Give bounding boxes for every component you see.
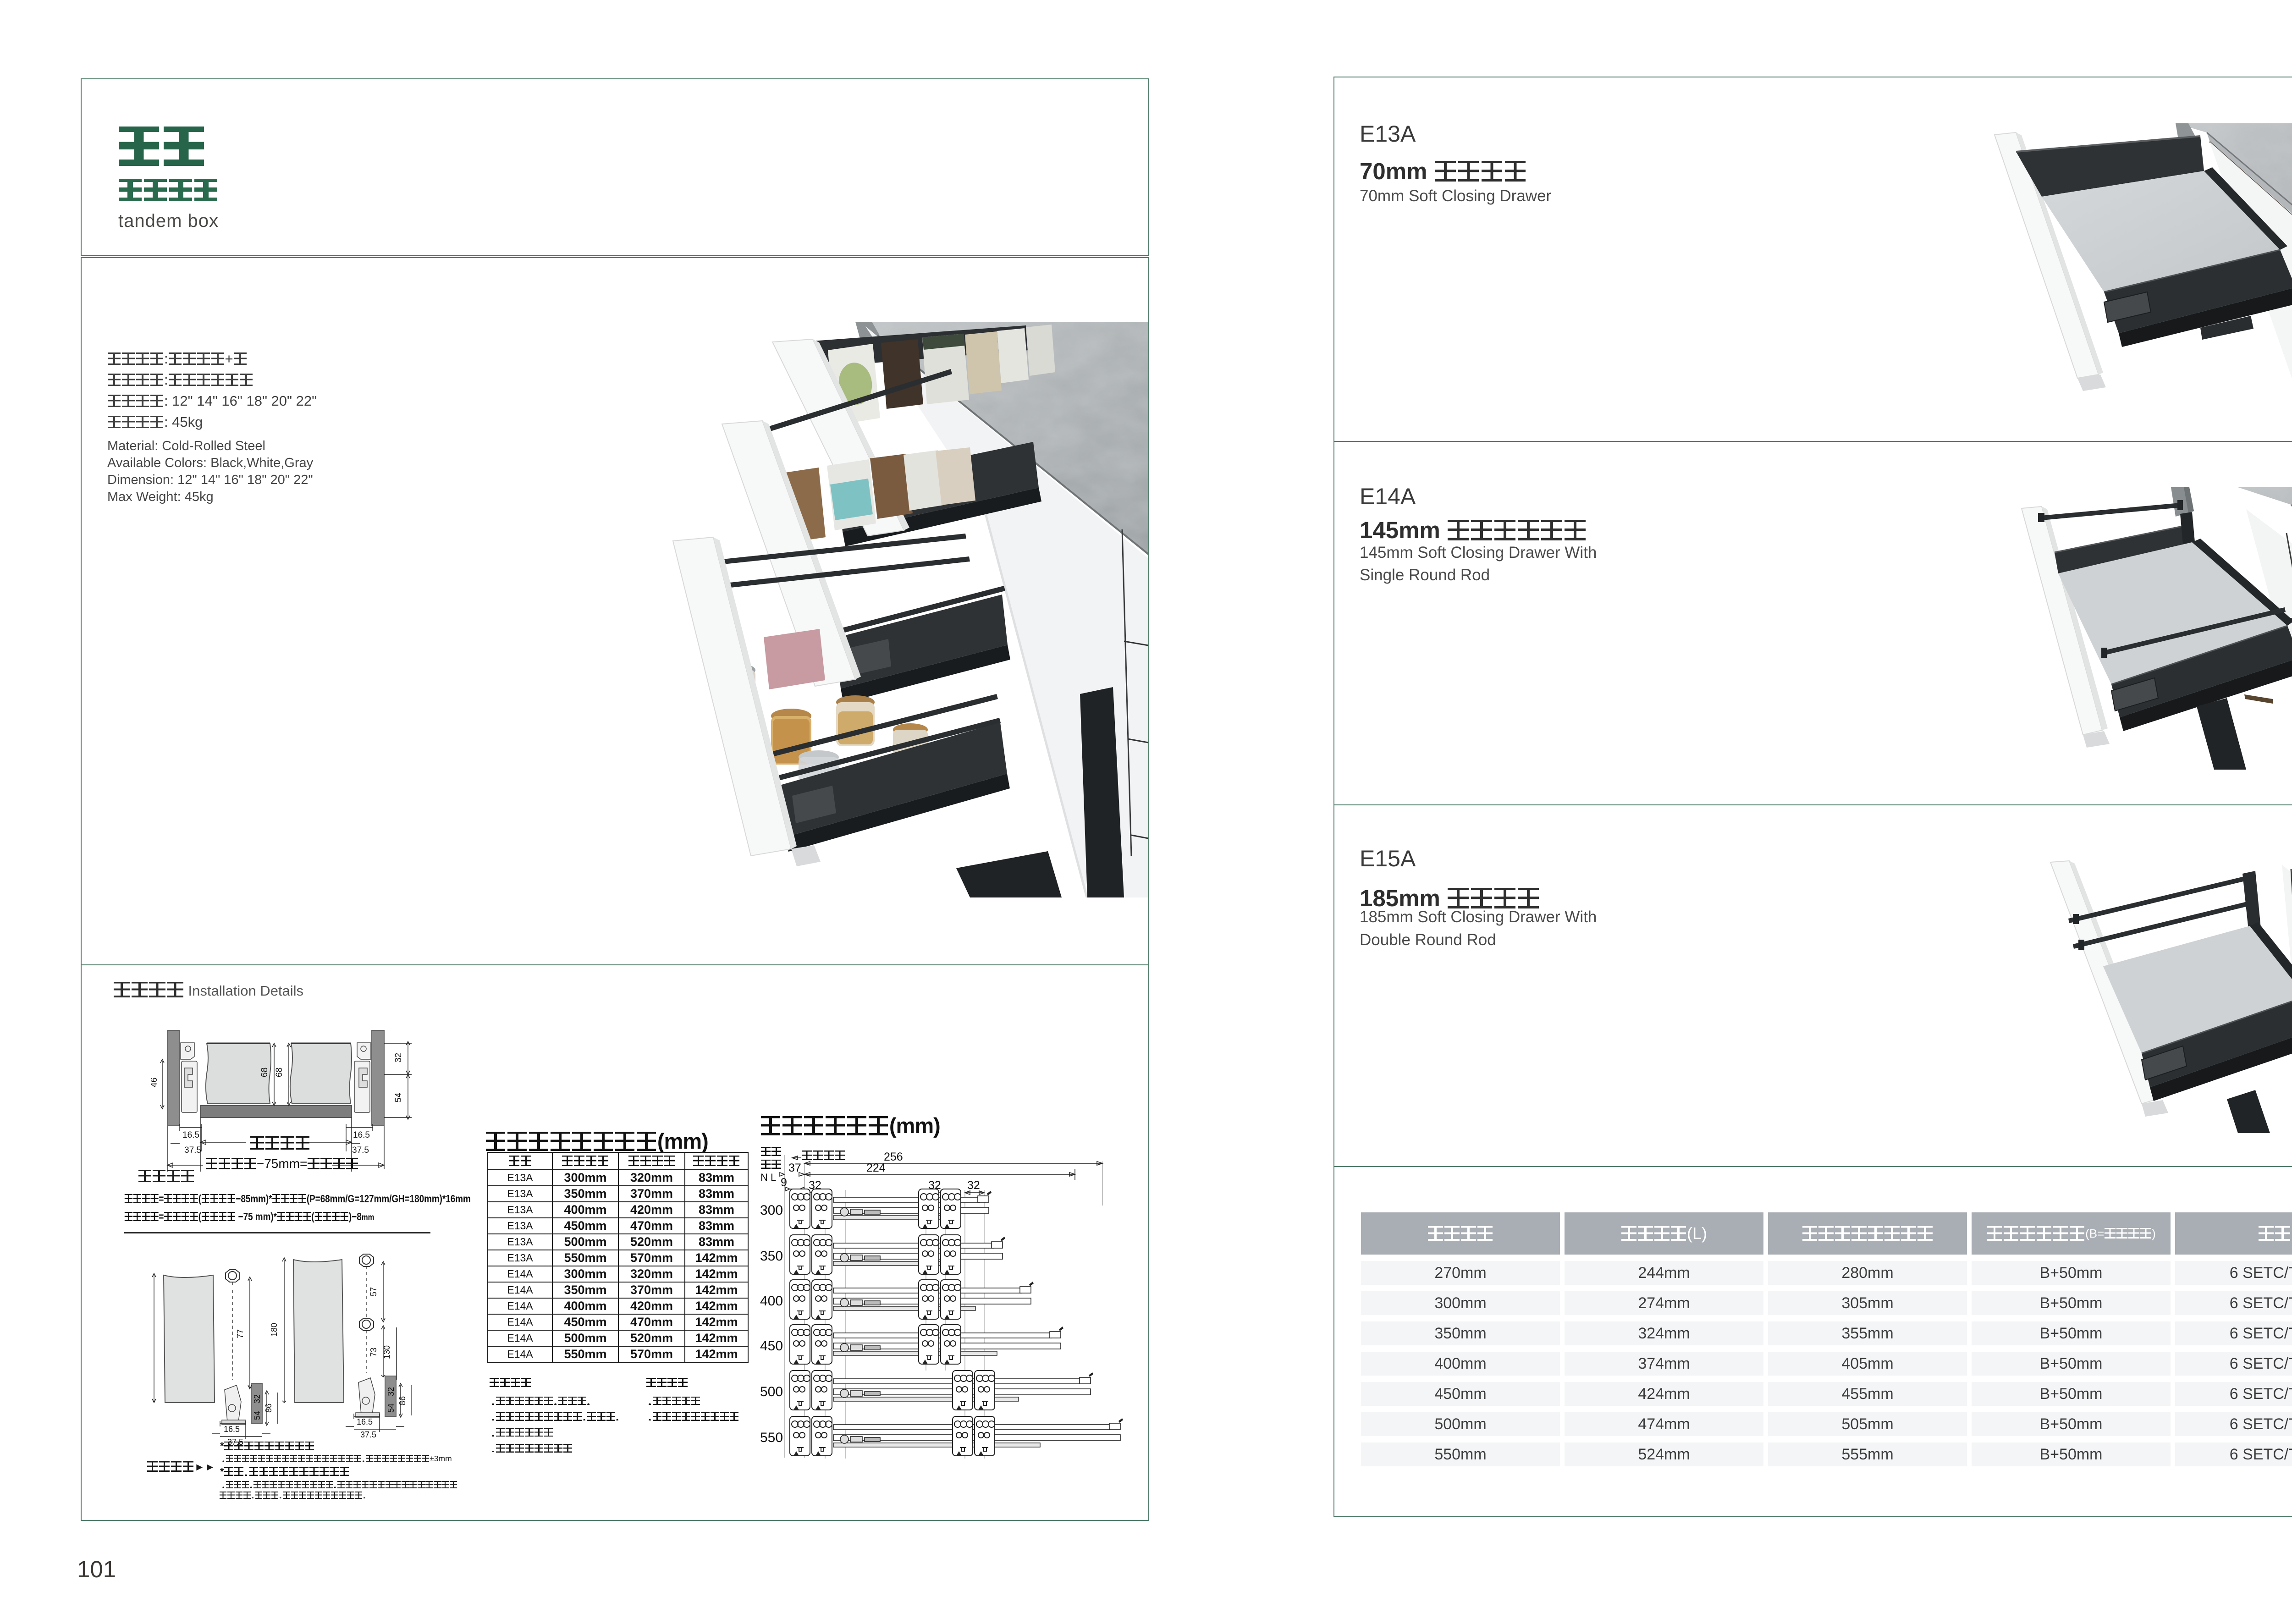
svg-text:32: 32 bbox=[386, 1387, 396, 1396]
svg-text:550: 550 bbox=[760, 1430, 783, 1445]
svg-text:130: 130 bbox=[382, 1345, 391, 1359]
svg-text:54: 54 bbox=[253, 1411, 262, 1420]
svg-text:37.5: 37.5 bbox=[184, 1145, 201, 1155]
svg-text:180: 180 bbox=[270, 1323, 279, 1337]
svg-text:16.5: 16.5 bbox=[224, 1425, 240, 1434]
svg-text:46: 46 bbox=[151, 1078, 159, 1087]
svg-text:37.5: 37.5 bbox=[360, 1430, 376, 1439]
svg-text:54: 54 bbox=[394, 1092, 403, 1102]
svg-text:37: 37 bbox=[788, 1162, 801, 1174]
svg-text:400: 400 bbox=[760, 1294, 783, 1309]
svg-text:68: 68 bbox=[275, 1068, 284, 1077]
svg-text:68: 68 bbox=[260, 1068, 270, 1077]
svg-text:32: 32 bbox=[967, 1179, 980, 1192]
svg-text:77: 77 bbox=[236, 1329, 245, 1338]
svg-text:256: 256 bbox=[884, 1151, 903, 1163]
svg-text:37.5: 37.5 bbox=[227, 1437, 243, 1447]
svg-text:9: 9 bbox=[781, 1176, 787, 1189]
svg-text:86: 86 bbox=[264, 1404, 273, 1413]
svg-text:450: 450 bbox=[760, 1338, 783, 1354]
svg-text:16.5: 16.5 bbox=[357, 1417, 373, 1426]
svg-text:500: 500 bbox=[760, 1384, 783, 1399]
svg-text:54: 54 bbox=[386, 1404, 396, 1413]
svg-text:350: 350 bbox=[760, 1249, 783, 1264]
svg-text:37.5: 37.5 bbox=[352, 1145, 369, 1155]
svg-text:127: 127 bbox=[147, 1330, 149, 1344]
svg-text:73: 73 bbox=[369, 1348, 378, 1357]
svg-text:16.5: 16.5 bbox=[353, 1130, 370, 1140]
svg-text:32: 32 bbox=[253, 1394, 262, 1404]
svg-text:32: 32 bbox=[394, 1053, 403, 1062]
svg-text:86: 86 bbox=[398, 1396, 407, 1405]
svg-text:57: 57 bbox=[369, 1287, 378, 1296]
svg-text:224: 224 bbox=[866, 1162, 886, 1174]
svg-text:300: 300 bbox=[760, 1203, 783, 1218]
svg-text:16.5: 16.5 bbox=[182, 1130, 199, 1140]
